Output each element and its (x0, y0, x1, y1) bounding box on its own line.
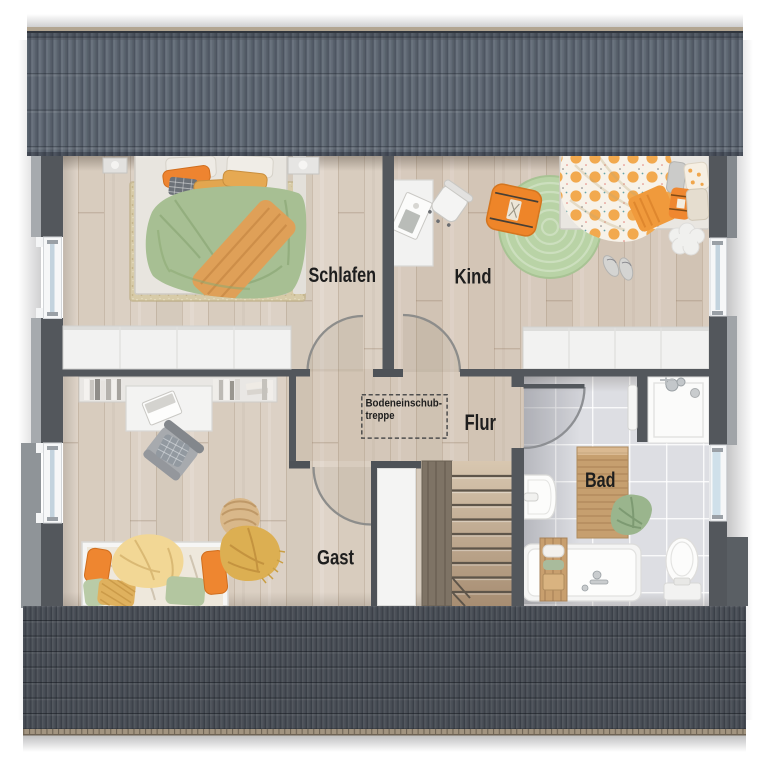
svg-text:Schlafen: Schlafen (309, 264, 377, 287)
svg-text:Gast: Gast (317, 547, 354, 570)
svg-text:Flur: Flur (465, 410, 497, 435)
svg-text:Bodeneinschub-: Bodeneinschub- (366, 397, 443, 409)
svg-text:treppe: treppe (366, 410, 395, 422)
svg-text:Bad: Bad (585, 469, 616, 492)
svg-text:Kind: Kind (455, 265, 492, 288)
